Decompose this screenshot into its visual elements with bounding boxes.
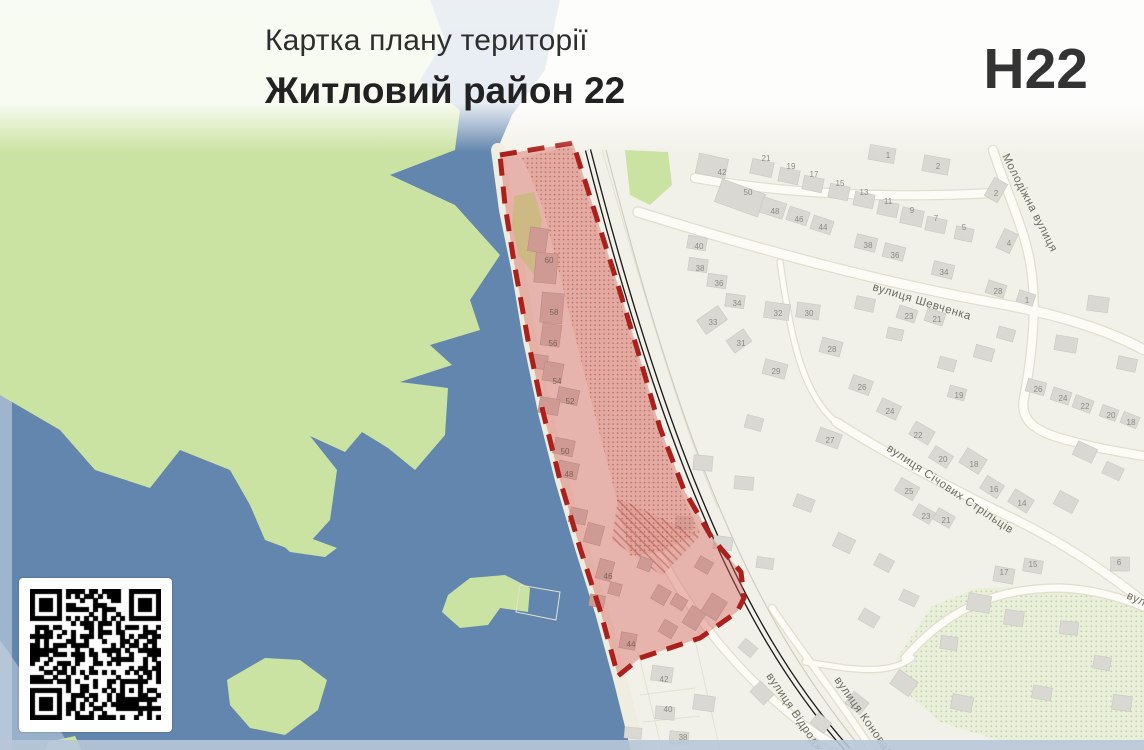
house-number: 23 [922,512,931,521]
house-number: 18 [1127,418,1136,427]
zone-house-number: 58 [550,308,559,317]
house-number: 15 [836,179,845,188]
house-number: 2 [994,189,999,198]
sheet-title: Картка плану території [265,24,588,58]
zone-building [527,227,548,253]
house-number: 26 [1034,385,1043,394]
house-number: 32 [774,309,783,318]
sheet-subtitle: Житловий район 22 [265,70,625,112]
sheet-code-badge: Н22 [983,36,1088,102]
house-number: 38 [696,264,705,273]
house-number: 23 [905,312,914,321]
zone-house-number: 54 [553,377,562,386]
building [966,593,992,614]
qr-code-matrix [30,589,161,720]
house-number: 6 [1117,558,1122,567]
house-number: 46 [795,215,804,224]
house-number: 15 [1029,560,1038,569]
zone-building [608,582,623,597]
building [624,727,642,739]
house-number: 4 [1007,239,1012,248]
building [1059,621,1078,636]
house-number: 22 [1081,402,1090,411]
house-number: 36 [715,279,724,288]
house-number: 36 [891,251,900,260]
house-number: 20 [939,455,948,464]
house-number: 1 [1025,296,1030,305]
house-number: 2 [936,162,941,171]
house-number: 42 [660,675,669,684]
house-number: 17 [1000,568,1009,577]
house-number: 1 [886,151,891,160]
house-number: 20 [1107,411,1116,420]
house-number: 17 [810,170,819,179]
house-number: 14 [1018,499,1027,508]
house-number: 28 [994,287,1003,296]
zone-house-number: 60 [545,256,554,265]
house-number: 19 [955,391,964,400]
house-number: 31 [737,339,746,348]
building [1093,655,1112,671]
house-number: 44 [819,223,828,232]
house-number: 34 [733,299,742,308]
building [693,694,716,712]
house-number: 29 [772,367,781,376]
house-number: 34 [940,268,949,277]
house-number: 9 [910,206,915,215]
building [1004,609,1025,626]
house-number: 5 [962,223,967,232]
building [940,635,959,650]
plan-sheet: 4250211917151311975124846443836344038363… [0,0,1144,750]
house-number: 19 [787,162,796,171]
zone-house-number: 50 [561,447,570,456]
house-number: 42 [718,168,727,177]
zone-house-number: 52 [566,397,575,406]
zone-house-number: 56 [549,339,558,348]
building [1112,694,1133,711]
building [693,455,713,472]
qr-code [19,578,172,732]
house-number: 13 [860,188,869,197]
house-number: 16 [990,485,999,494]
zone-house-number: 46 [604,572,613,581]
house-number: 33 [709,318,718,327]
house-number: 40 [695,242,704,251]
house-number: 21 [933,315,942,324]
house-number: 27 [826,436,835,445]
house-number: 21 [762,154,771,163]
zone-house-number: 44 [627,640,636,649]
house-number: 25 [905,487,914,496]
house-number: 24 [1059,394,1068,403]
house-number: 38 [864,241,873,250]
house-number: 18 [970,460,979,469]
building [734,476,754,491]
house-number: 24 [886,407,895,416]
house-number: 26 [858,383,867,392]
house-number: 50 [744,188,753,197]
house-number: 21 [942,516,951,525]
house-number: 40 [664,705,673,714]
building [756,556,774,569]
building [1087,295,1110,313]
house-number: 28 [828,345,837,354]
house-number: 22 [914,431,923,440]
zone-house-number: 48 [565,470,574,479]
house-number: 30 [805,309,814,318]
house-number: 48 [771,207,780,216]
house-number: 7 [934,214,939,223]
bottom-fade-band [0,740,1144,750]
house-number: 11 [884,197,893,206]
